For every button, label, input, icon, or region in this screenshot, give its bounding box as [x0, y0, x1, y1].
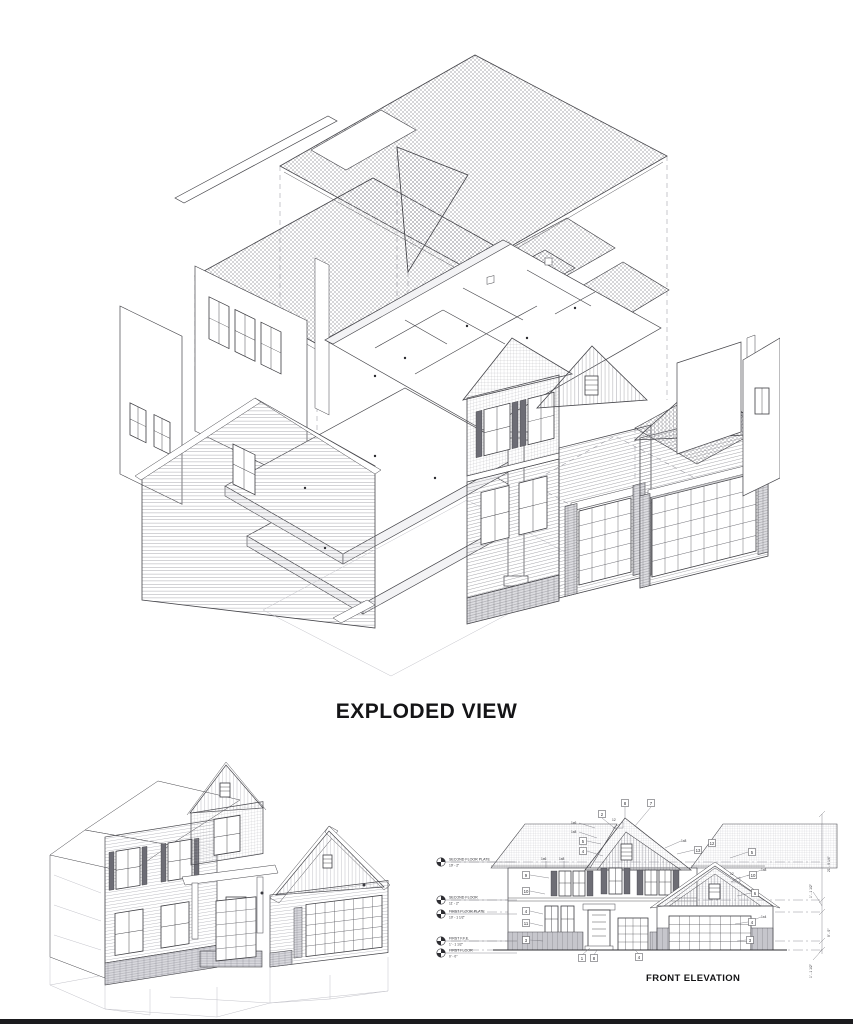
svg-text:11: 11 [524, 921, 529, 926]
svg-text:1x6: 1x6 [571, 821, 576, 825]
door-stoop [585, 946, 613, 950]
svg-text:11' - 2": 11' - 2" [449, 902, 460, 906]
wing-louver [709, 884, 720, 899]
level-markers: SECOND FLOOR PLATE 19' - 2" SECOND FLOOR… [437, 858, 517, 959]
center-gable-louver [220, 783, 230, 797]
gable-louver-vent [585, 376, 598, 395]
svg-text:19' - 2": 19' - 2" [449, 864, 460, 868]
level-marker-second-floor: SECOND FLOOR 11' - 2" [437, 896, 517, 906]
svg-text:10: 10 [524, 889, 529, 894]
second-floor-windows [551, 868, 679, 896]
front-elevation-title: FRONT ELEVATION [646, 973, 740, 984]
svg-text:1x8: 1x8 [559, 857, 564, 861]
svg-text:1' - 1 1/2": 1' - 1 1/2" [449, 943, 464, 947]
svg-text:12: 12 [730, 872, 734, 876]
garage-wing [261, 826, 391, 967]
brick-wainscot-left [508, 932, 583, 950]
single-garage [216, 897, 256, 961]
svg-text:1' - 1 1/2": 1' - 1 1/2" [809, 963, 813, 978]
wing-louver [323, 855, 332, 868]
entry-door [588, 910, 610, 950]
svg-text:1x8: 1x8 [681, 839, 686, 843]
svg-text:9' - 0": 9' - 0" [827, 928, 831, 937]
svg-text:FIRST F.F.E.: FIRST F.F.E. [449, 937, 469, 941]
exploded-axonometric-drawing [75, 8, 780, 688]
svg-text:12: 12 [612, 818, 616, 822]
svg-text:21' - 0 1/4": 21' - 0 1/4" [827, 855, 831, 872]
svg-text:13: 13 [696, 848, 701, 853]
svg-text:1x4: 1x4 [761, 915, 766, 919]
svg-text:SECOND FLOOR: SECOND FLOOR [449, 896, 478, 900]
elevation-building [491, 818, 837, 950]
svg-text:12: 12 [710, 841, 715, 846]
svg-text:1x8: 1x8 [571, 830, 576, 834]
garage-single [559, 425, 651, 598]
front-elevation-drawing: SECOND FLOOR PLATE 19' - 2" SECOND FLOOR… [425, 778, 853, 993]
svg-text:10: 10 [751, 873, 756, 878]
sheet-edge-bar [0, 1019, 853, 1024]
svg-text:FIRST FLOOR: FIRST FLOOR [449, 949, 473, 953]
svg-text:1' - 1 1/2": 1' - 1 1/2" [809, 883, 813, 898]
sconce-light [363, 884, 366, 887]
perspective-rendering [30, 745, 400, 1020]
porch-post-left [192, 883, 198, 939]
svg-text:1x8: 1x8 [761, 868, 766, 872]
sconce-light [261, 892, 264, 895]
exploded-view-title: EXPLODED VIEW [0, 700, 853, 724]
svg-text:FIRST FLOOR PLATE: FIRST FLOOR PLATE [449, 910, 485, 914]
level-marker-first-ffe: FIRST F.F.E. 1' - 1 1/2" [437, 937, 517, 947]
svg-text:SECOND FLOOR PLATE: SECOND FLOOR PLATE [449, 858, 490, 862]
svg-text:1x6: 1x6 [541, 857, 546, 861]
architectural-sheet: EXPLODED VIEW [0, 0, 853, 1024]
porch-post-right [257, 877, 263, 933]
level-marker-first-floor-plate: FIRST FLOOR PLATE 10' - 1 1/2" [437, 910, 517, 920]
svg-text:10' - 1 1/2": 10' - 1 1/2" [449, 916, 466, 920]
svg-text:0' - 0": 0' - 0" [449, 955, 458, 959]
